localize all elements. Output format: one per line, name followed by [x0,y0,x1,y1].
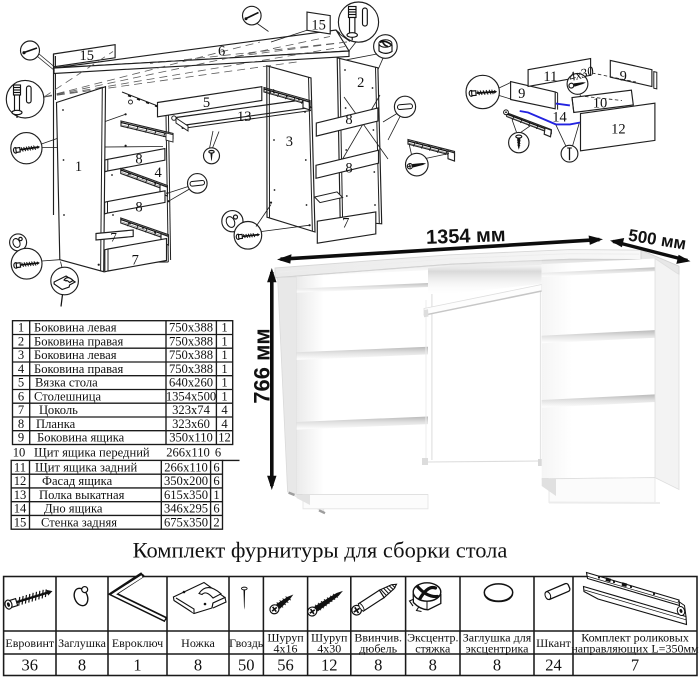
svg-text:4x16: 4x16 [274,642,298,656]
svg-text:1: 1 [18,321,24,335]
svg-text:8: 8 [135,200,142,216]
svg-text:Шкант: Шкант [536,636,572,650]
svg-text:13: 13 [14,488,27,502]
svg-text:15: 15 [14,515,27,529]
svg-text:8: 8 [345,161,352,177]
svg-text:6: 6 [18,389,24,403]
svg-text:Щит ящика задний: Щит ящика задний [35,460,137,474]
svg-text:24: 24 [545,656,562,675]
svg-text:8: 8 [493,656,501,675]
svg-text:1: 1 [221,389,227,403]
svg-text:56: 56 [277,656,294,675]
svg-text:12: 12 [611,122,626,138]
svg-text:3: 3 [286,134,293,150]
svg-text:1: 1 [221,362,227,376]
svg-text:эксцентрика: эксцентрика [466,642,530,656]
svg-text:1: 1 [75,159,82,175]
svg-text:направляющих L=350мм: направляющих L=350мм [571,642,699,656]
svg-text:266x110: 266x110 [164,460,208,474]
svg-text:350x110: 350x110 [169,431,213,445]
svg-text:1: 1 [221,334,227,348]
svg-text:Цоколь: Цоколь [39,403,78,417]
svg-text:6: 6 [213,502,219,516]
svg-text:4: 4 [18,362,25,376]
svg-text:7: 7 [342,216,349,232]
svg-text:640x260: 640x260 [169,376,213,390]
svg-text:2: 2 [213,515,219,529]
svg-text:11: 11 [543,69,557,85]
svg-text:дюбель: дюбель [359,642,397,656]
svg-text:стяжка: стяжка [415,642,451,656]
svg-text:1: 1 [221,321,227,335]
svg-text:750x388: 750x388 [169,362,213,376]
svg-text:Ножка: Ножка [181,636,215,650]
svg-text:Планка: Планка [36,417,76,431]
svg-text:Боковина левая: Боковина левая [34,348,117,362]
svg-text:7: 7 [132,253,139,269]
svg-text:12: 12 [14,474,27,488]
svg-text:8: 8 [374,656,382,675]
svg-text:Заглушка: Заглушка [58,636,107,650]
svg-text:Стенка задняя: Стенка задняя [41,515,117,529]
svg-text:5: 5 [18,376,24,390]
svg-text:2: 2 [18,334,24,348]
svg-text:1: 1 [213,488,219,502]
svg-text:1354x500: 1354x500 [166,389,216,403]
svg-text:3: 3 [18,348,24,362]
svg-text:Комплект фурнитуры для сборки: Комплект фурнитуры для сборки стола [133,538,508,563]
svg-text:4x30: 4x30 [317,642,341,656]
svg-text:6: 6 [213,460,219,474]
svg-text:266x110: 266x110 [166,446,210,460]
svg-text:7: 7 [110,230,117,245]
svg-text:Боковина левая: Боковина левая [34,321,117,335]
svg-text:7: 7 [631,656,639,675]
svg-text:Вязка стола: Вязка стола [35,376,98,390]
svg-text:9: 9 [518,86,525,102]
svg-text:6: 6 [218,44,225,60]
svg-text:Боковина ящика: Боковина ящика [37,431,125,445]
svg-text:Боковина правая: Боковина правая [34,334,123,348]
svg-text:8: 8 [135,152,142,168]
svg-text:8: 8 [78,656,86,675]
svg-text:1: 1 [221,376,227,390]
svg-text:7: 7 [18,403,24,417]
svg-text:15: 15 [311,18,326,34]
svg-text:1: 1 [133,656,141,675]
svg-text:750x388: 750x388 [169,334,213,348]
svg-text:766 мм: 766 мм [249,328,274,403]
svg-text:675x350: 675x350 [164,515,208,529]
svg-text:8: 8 [194,656,202,675]
svg-text:615x350: 615x350 [164,488,208,502]
svg-text:14: 14 [552,110,567,126]
svg-text:6: 6 [213,474,219,488]
svg-text:9: 9 [18,431,24,445]
svg-text:4: 4 [221,403,228,417]
svg-text:1354 мм: 1354 мм [426,224,506,249]
svg-text:4: 4 [221,417,228,431]
svg-text:14: 14 [14,502,27,516]
svg-text:50: 50 [238,656,255,675]
svg-text:Щит ящика передний: Щит ящика передний [34,446,150,460]
svg-text:323x74: 323x74 [172,403,210,417]
svg-text:1: 1 [221,348,227,362]
svg-text:323x60: 323x60 [172,417,210,431]
svg-text:750x388: 750x388 [169,348,213,362]
svg-text:Евровинт: Евровинт [5,636,55,650]
svg-text:8: 8 [18,417,24,431]
svg-text:2: 2 [357,75,364,91]
svg-text:12: 12 [321,656,338,675]
svg-text:346x295: 346x295 [164,502,208,516]
svg-text:350x200: 350x200 [164,474,208,488]
svg-text:Полка выкатная: Полка выкатная [39,488,125,502]
svg-text:Боковина правая: Боковина правая [34,362,123,376]
svg-text:Гвоздь: Гвоздь [229,636,264,650]
svg-text:Евроключ: Евроключ [112,636,163,650]
svg-text:36: 36 [22,656,39,675]
svg-text:9: 9 [620,69,627,85]
svg-text:8: 8 [345,112,352,128]
svg-text:13: 13 [237,109,252,125]
svg-text:15: 15 [79,48,94,64]
svg-text:6: 6 [215,446,221,460]
svg-text:Столешница: Столешница [34,389,101,403]
svg-text:5: 5 [203,95,210,111]
svg-text:8: 8 [429,656,437,675]
svg-text:10: 10 [13,446,26,460]
svg-text:Дно ящика: Дно ящика [44,502,103,516]
svg-text:750x388: 750x388 [169,321,213,335]
svg-text:4: 4 [154,165,162,181]
svg-text:12: 12 [218,431,231,445]
svg-text:11: 11 [14,460,26,474]
svg-text:Фасад ящика: Фасад ящика [42,474,113,488]
